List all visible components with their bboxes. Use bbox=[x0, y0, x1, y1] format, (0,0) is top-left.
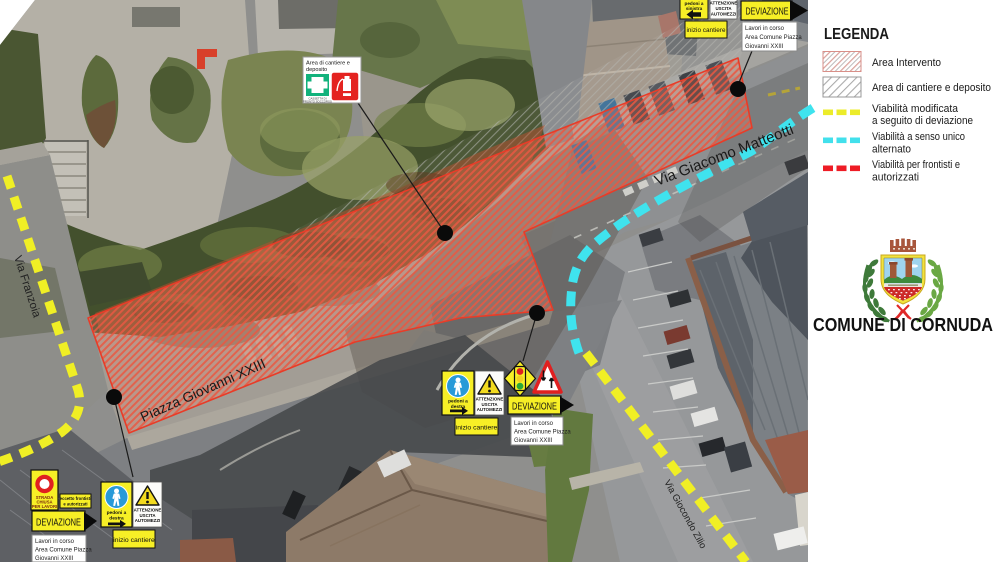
svg-text:alternato: alternato bbox=[872, 144, 911, 156]
svg-text:USCITA: USCITA bbox=[481, 402, 498, 407]
svg-text:USCITA: USCITA bbox=[715, 6, 732, 11]
svg-text:autorizzati: autorizzati bbox=[872, 172, 919, 184]
svg-text:a seguito di deviazione: a seguito di deviazione bbox=[872, 115, 973, 127]
svg-text:destra: destra bbox=[109, 515, 124, 521]
svg-text:Area Comune Piazza: Area Comune Piazza bbox=[35, 548, 92, 554]
svg-text:Lavori in corso: Lavori in corso bbox=[35, 539, 75, 545]
svg-text:Area di cantiere e deposito: Area di cantiere e deposito bbox=[872, 82, 991, 94]
svg-text:Lavori in corso: Lavori in corso bbox=[745, 26, 785, 32]
svg-text:PRONTO SOCCORSO: PRONTO SOCCORSO bbox=[303, 100, 333, 104]
svg-text:Area Comune Piazza: Area Comune Piazza bbox=[745, 35, 802, 41]
svg-text:Viabilità a senso unico: Viabilità a senso unico bbox=[872, 131, 965, 143]
svg-text:Area Comune Piazza: Area Comune Piazza bbox=[514, 430, 571, 436]
svg-text:deposito: deposito bbox=[306, 67, 327, 73]
svg-text:AUTOMEZZI: AUTOMEZZI bbox=[711, 12, 737, 17]
svg-text:Giovanni XXIII: Giovanni XXIII bbox=[514, 438, 553, 444]
svg-text:DEVIAZIONE: DEVIAZIONE bbox=[512, 402, 557, 413]
svg-text:Viabilità modificata: Viabilità modificata bbox=[872, 103, 959, 115]
svg-text:LEGENDA: LEGENDA bbox=[824, 26, 889, 43]
svg-text:Giovanni XXIII: Giovanni XXIII bbox=[35, 556, 74, 562]
svg-text:USCITA: USCITA bbox=[139, 513, 156, 518]
svg-text:DEVIAZIONE: DEVIAZIONE bbox=[746, 6, 789, 18]
svg-text:Giovanni XXIII: Giovanni XXIII bbox=[745, 44, 784, 50]
svg-text:ATTENZIONE: ATTENZIONE bbox=[710, 1, 738, 6]
svg-text:COMUNE DI CORNUDA: COMUNE DI CORNUDA bbox=[813, 314, 993, 335]
svg-text:eccetto frontisti: eccetto frontisti bbox=[60, 496, 91, 501]
svg-text:ATTENZIONE: ATTENZIONE bbox=[134, 508, 162, 513]
svg-text:inizio cantiere: inizio cantiere bbox=[113, 537, 155, 544]
svg-text:e autorizzati: e autorizzati bbox=[63, 502, 87, 507]
svg-text:Viabilità per frontisti e: Viabilità per frontisti e bbox=[872, 159, 960, 171]
svg-text:AUTOMEZZI: AUTOMEZZI bbox=[135, 518, 161, 523]
svg-text:inizio cantiere: inizio cantiere bbox=[686, 27, 726, 34]
svg-text:PER LAVORI: PER LAVORI bbox=[32, 504, 57, 509]
svg-text:Area di cantiere e: Area di cantiere e bbox=[306, 61, 350, 67]
svg-text:Area Intervento: Area Intervento bbox=[872, 57, 941, 69]
svg-text:Lavori in corso: Lavori in corso bbox=[514, 421, 554, 427]
svg-text:pedoni a: pedoni a bbox=[107, 510, 127, 516]
svg-text:pedoni a: pedoni a bbox=[448, 399, 468, 405]
svg-text:ATTENZIONE: ATTENZIONE bbox=[476, 397, 504, 402]
svg-text:sinistra: sinistra bbox=[686, 6, 703, 11]
svg-text:DEVIAZIONE: DEVIAZIONE bbox=[36, 518, 81, 529]
svg-text:inizio cantiere: inizio cantiere bbox=[456, 425, 498, 432]
svg-text:AUTOMEZZI: AUTOMEZZI bbox=[477, 407, 503, 412]
